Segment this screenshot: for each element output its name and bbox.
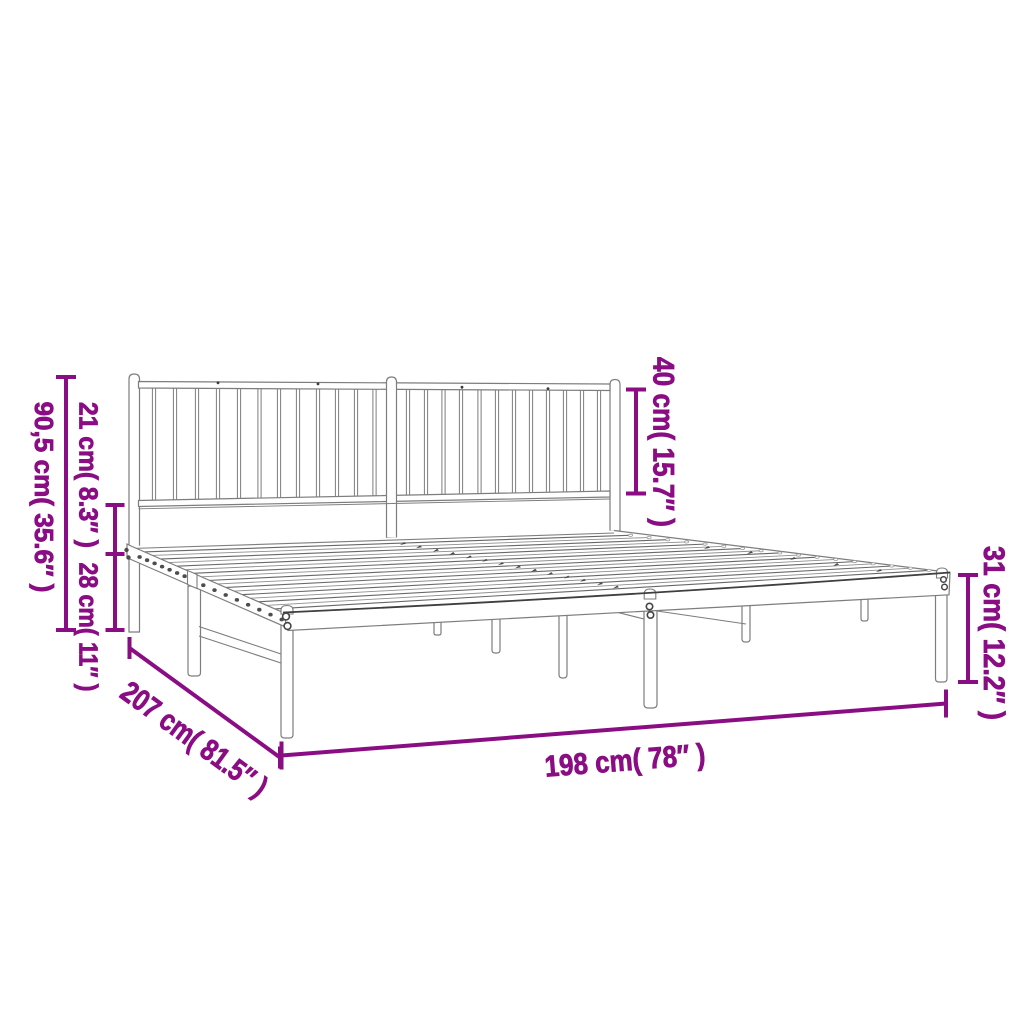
svg-text:28 cm( 11″ ): 28 cm( 11″ )	[74, 563, 104, 692]
svg-text:40 cm( 15.7″ ): 40 cm( 15.7″ )	[647, 357, 680, 527]
svg-text:31 cm( 12.2″ ): 31 cm( 12.2″ )	[977, 546, 1010, 720]
svg-text:21 cm( 8.3″ ): 21 cm( 8.3″ )	[74, 402, 104, 548]
svg-text:90,5 cm( 35.6″ ): 90,5 cm( 35.6″ )	[29, 402, 59, 593]
